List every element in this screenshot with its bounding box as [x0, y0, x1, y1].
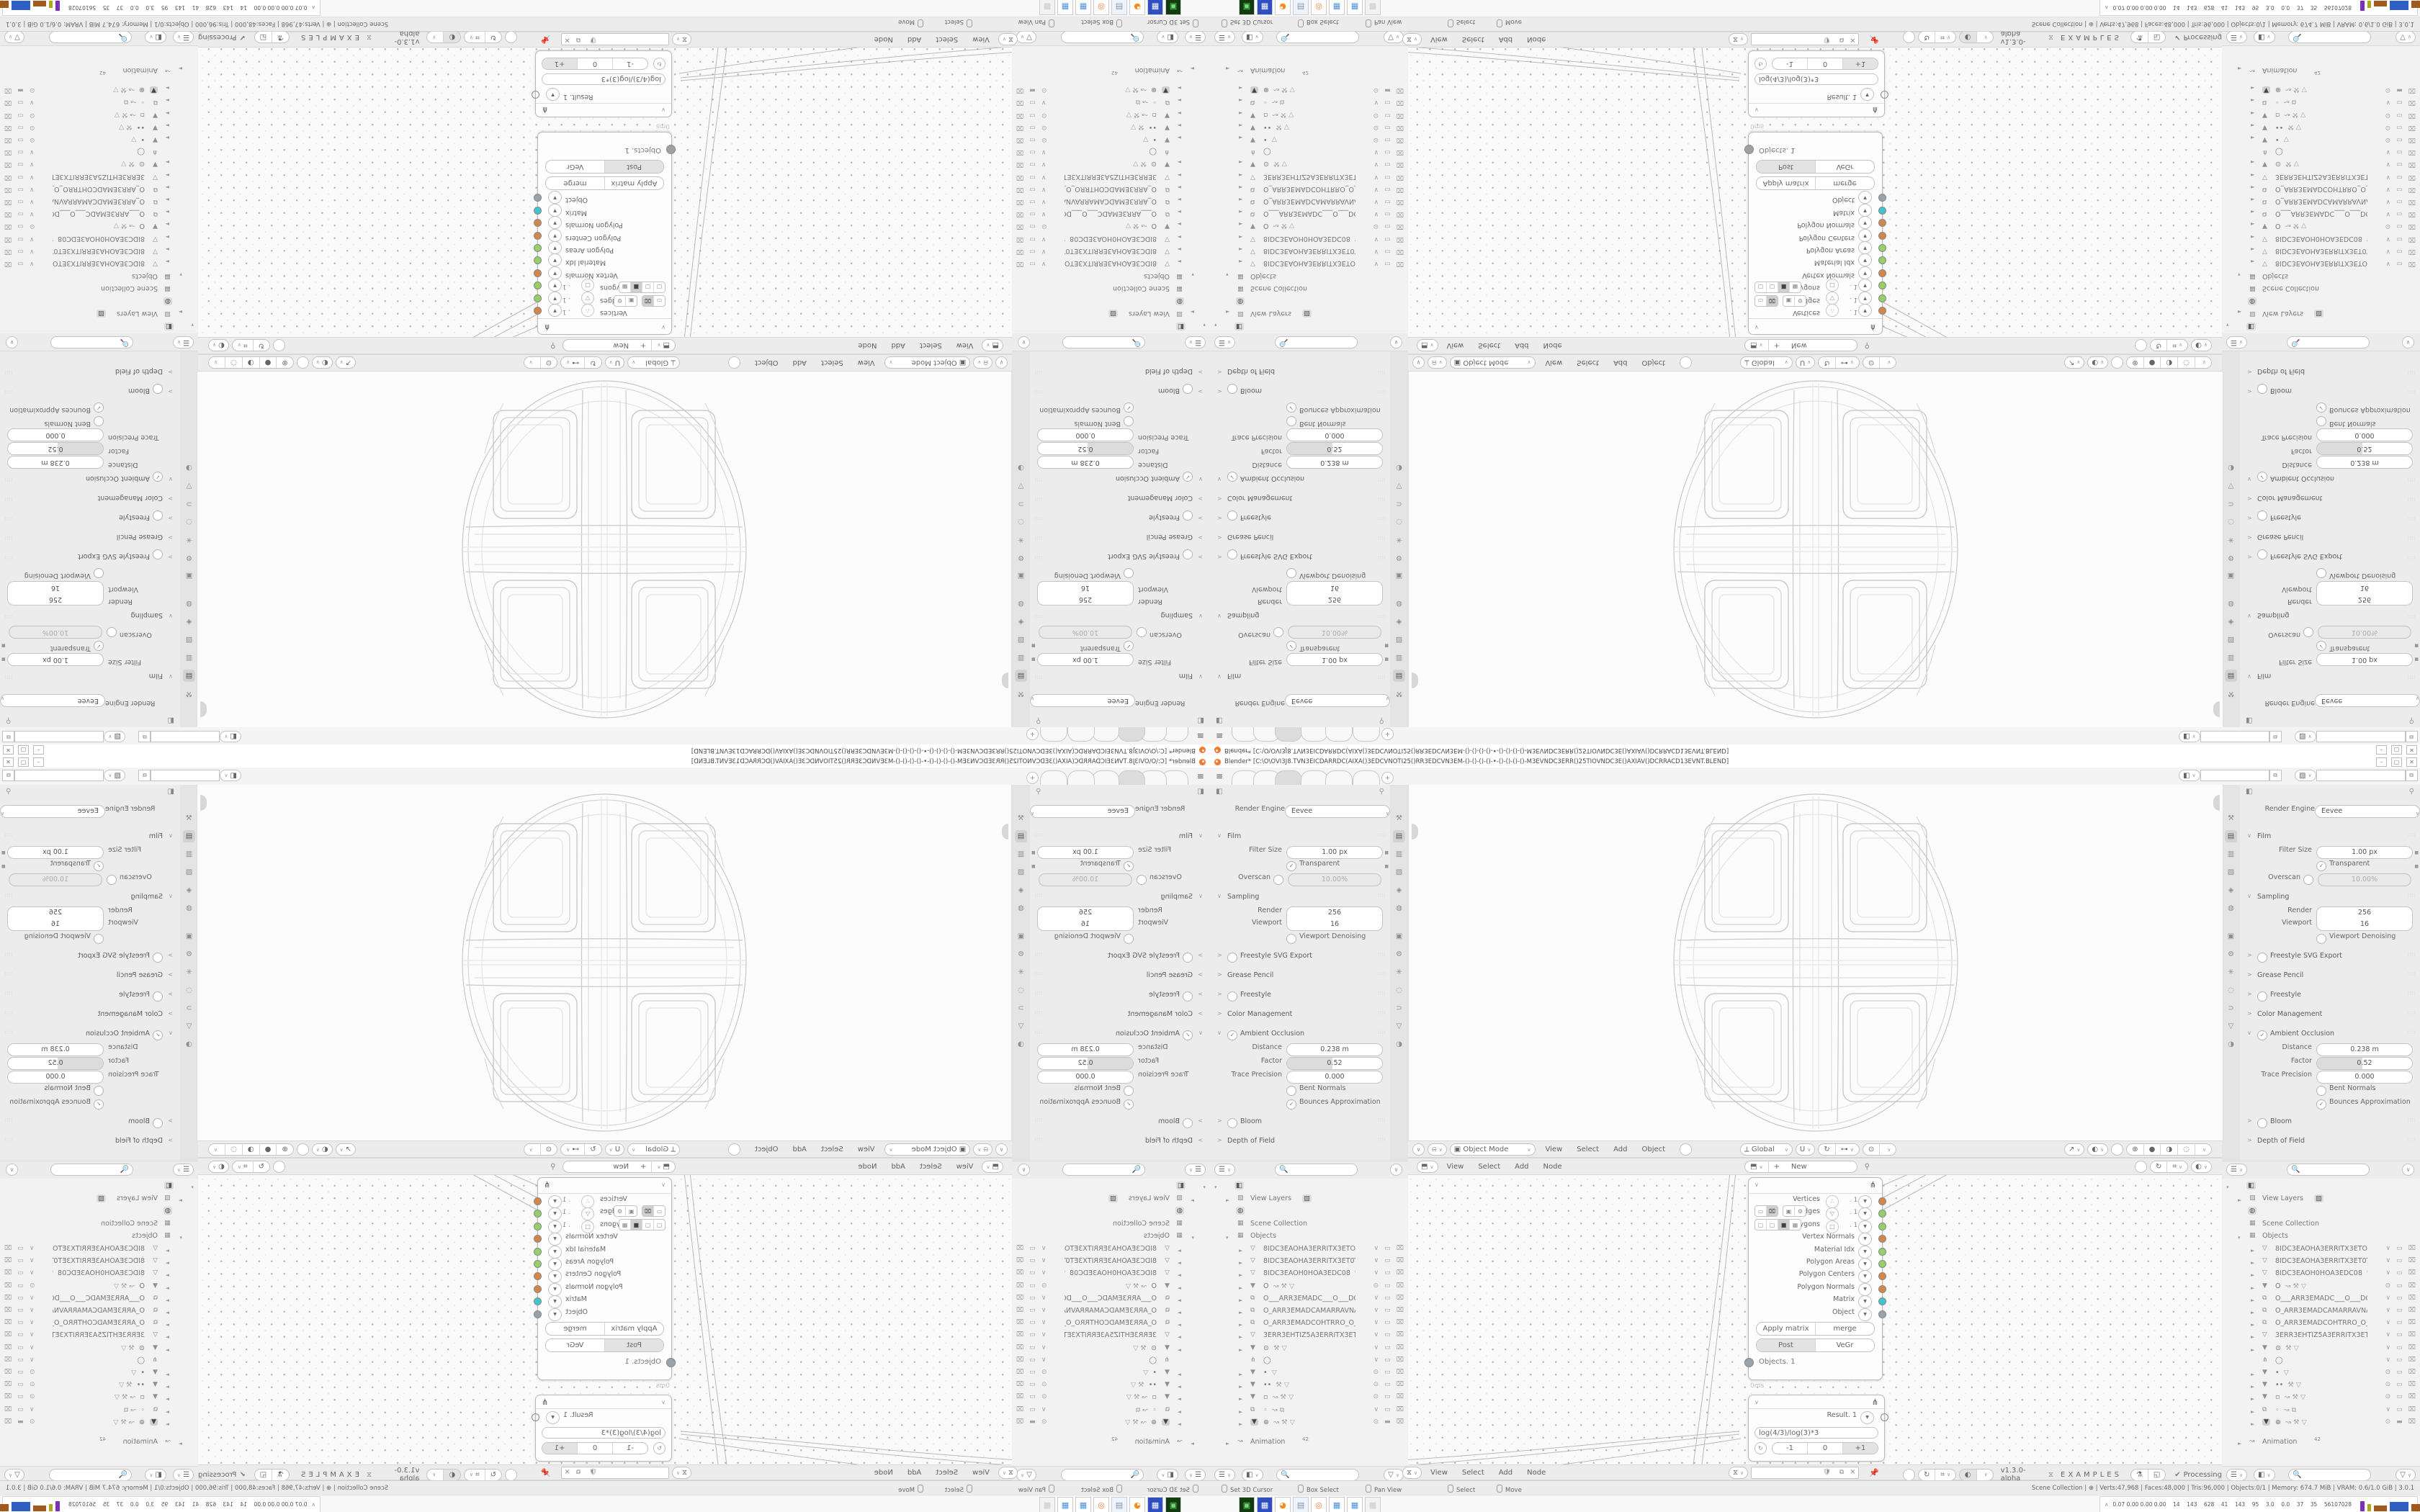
node-canvas[interactable]: ∨⋔ Vertices∴. 1▼Edges▽. 1▼Polygons□. 1▼V…	[198, 1175, 1012, 1464]
pin-icon[interactable]: 📌	[1869, 35, 1879, 44]
objects-collection-item[interactable]: Objects	[2262, 1232, 2288, 1240]
object-name[interactable]: ◦↝ ⧉	[1263, 98, 1284, 106]
object-name[interactable]: ◦↝ ⧉	[124, 98, 145, 106]
taskbar-app-icon-1[interactable]: ▦	[1257, 1497, 1273, 1512]
menu-add[interactable]: Add	[1515, 341, 1528, 349]
object-type-icon[interactable]: ▽	[2262, 260, 2267, 267]
outliner-row[interactable]: ►⧉O_ARR3EMADCAMARRAVNATI_O∨▭⌧	[1012, 194, 1210, 205]
properties-tab-icon-6[interactable]: ▣	[1393, 930, 1405, 942]
render-restrict-icon[interactable]: ⌧	[2408, 1331, 2416, 1338]
clear-icon[interactable]: ✕	[565, 36, 570, 43]
outliner-row[interactable]: ►▼▫↝ ⚒ ▽⊙▭⌧	[1012, 1393, 1210, 1405]
socket-menu-button[interactable]: ▼	[548, 1207, 562, 1220]
outliner-row[interactable]: ►▼⊙⚒ ▽∨▭⌧	[0, 1344, 198, 1356]
value-field[interactable]: 1.00 px	[1037, 846, 1134, 859]
outliner-row[interactable]: ►⧉O_ARR3EMADCAMARRAVNATI_O∨▭⌧	[0, 1307, 198, 1318]
object-type-icon[interactable]: ▽	[2262, 1245, 2267, 1252]
render-restrict-icon[interactable]: ⌧	[1016, 210, 1023, 217]
properties-tab-icon-6[interactable]: ▣	[2225, 570, 2237, 582]
object-type-icon[interactable]: ⧉	[1250, 99, 1255, 106]
render-restrict-icon[interactable]: ⌧	[1016, 198, 1023, 205]
scene-collection-item[interactable]: Scene Collection	[1250, 1220, 1307, 1228]
properties-tab-icon-9[interactable]: ◌	[1393, 516, 1405, 528]
value-field[interactable]: 256	[1286, 906, 1383, 919]
options-chevron-icon[interactable]: ∨	[2402, 1164, 2414, 1176]
tree-icon[interactable]: ⬒∨	[652, 1161, 675, 1172]
section-checkbox[interactable]: ✓	[1183, 472, 1193, 482]
viewport-3d[interactable]	[197, 372, 1012, 727]
outliner-row[interactable]: ►▧View Layers▧	[1210, 1194, 1408, 1206]
object-type-icon[interactable]: ⧉	[1250, 186, 1255, 193]
orientation-dropdown[interactable]: ⟂ Global∨	[627, 1143, 680, 1156]
outliner-row[interactable]: ►▼•▽⊙▭⌧	[1210, 1369, 1408, 1380]
value-field[interactable]: 1.00 px	[2316, 846, 2413, 859]
scene-collection-item[interactable]: Scene Collection	[2262, 284, 2319, 292]
checkbox[interactable]	[94, 568, 104, 578]
menu-view[interactable]: View	[858, 359, 875, 366]
checkbox[interactable]	[1137, 875, 1147, 885]
search-input[interactable]: 🔍	[1061, 1469, 1144, 1481]
eye-icon[interactable]: ⊙	[2385, 1381, 2391, 1388]
gizmo-icon[interactable]: ↻	[485, 1470, 501, 1480]
section-checkbox[interactable]	[2257, 549, 2267, 559]
eye-icon[interactable]: ⊙	[1041, 1282, 1047, 1290]
properties-tab-icon-10[interactable]: ⊃	[183, 498, 195, 510]
options-chevron-icon[interactable]: ∨	[1390, 336, 1402, 348]
restrict-chevron-icon[interactable]: ∨	[1041, 248, 1047, 255]
menu-object[interactable]: Object	[1641, 1146, 1665, 1153]
orientation-dropdown[interactable]: ⟂ Global∨	[1740, 1143, 1793, 1156]
eye-icon[interactable]: ⊙	[30, 1369, 35, 1376]
shading-wireframe-icon[interactable]: ⊕	[2127, 357, 2143, 368]
render-restrict-icon[interactable]: ⌧	[1016, 260, 1023, 267]
screen-icon[interactable]: ▭	[17, 1245, 24, 1252]
restrict-chevron-icon[interactable]: ∨	[2386, 1406, 2391, 1413]
outliner-row[interactable]: ⋔◯∨▭⌧	[2222, 144, 2420, 156]
eye-icon[interactable]: ⊙	[30, 1282, 35, 1290]
render-restrict-icon[interactable]: ⌧	[1397, 210, 1404, 217]
outliner-row[interactable]: ►⧉◦↝ ⧉∨▭⌧	[1210, 1406, 1408, 1418]
outliner-row[interactable]: ►⧉O_ARR3EMADCAMARRAVNATI_O∨▭⌧	[0, 194, 198, 205]
apply-matrix-button[interactable]: Apply matrix	[605, 1323, 663, 1335]
overlays-icon[interactable]	[505, 1469, 517, 1481]
screen-icon[interactable]: ▭	[1384, 1282, 1391, 1290]
screen-icon[interactable]: ▭	[1029, 235, 1036, 243]
wrap-icon[interactable]: ↻	[1754, 58, 1767, 70]
properties-tab-icon-1[interactable]: ▤	[183, 830, 195, 842]
output-socket[interactable]	[534, 269, 542, 277]
properties-tab-icon-4[interactable]: ◈	[1393, 616, 1405, 628]
properties-tab-icon-12[interactable]: ◑	[183, 1038, 195, 1050]
output-socket[interactable]	[534, 1197, 542, 1205]
object-name[interactable]: O↝ ⚒ ▽	[1126, 1282, 1157, 1290]
pin-icon[interactable]: ⚲	[1036, 716, 1041, 724]
menu-select[interactable]: Select	[920, 341, 942, 349]
socket-menu-button[interactable]: ▼	[548, 191, 562, 204]
checkbox[interactable]: ✓	[1286, 402, 1296, 413]
maximize-button[interactable]: ▢	[2391, 745, 2402, 755]
restrict-chevron-icon[interactable]: ∨	[2386, 1245, 2391, 1252]
outliner-row[interactable]: ◍	[1012, 294, 1210, 305]
pivot-icon[interactable]: ⊙	[541, 357, 557, 368]
object-name[interactable]: •▽	[131, 1369, 145, 1377]
menu-node[interactable]: Node	[858, 1163, 877, 1171]
object-type-icon[interactable]: ▽	[153, 1269, 158, 1277]
properties-tab-icon-6[interactable]: ▣	[2225, 930, 2237, 942]
object-name[interactable]: O↝ ⚒ ▽	[2275, 1282, 2306, 1290]
viewport-3d[interactable]	[1408, 372, 2223, 727]
screen-icon[interactable]: ▭	[2396, 1331, 2403, 1338]
shading-dropdown-icon[interactable]: ∨	[2195, 1144, 2211, 1155]
display-mode-dropdown[interactable]: ☰∨	[2226, 1164, 2247, 1176]
render-restrict-icon[interactable]: ⌧	[1016, 1406, 1023, 1413]
animation-item[interactable]: Animation	[123, 66, 158, 74]
restrict-chevron-icon[interactable]: ∨	[1374, 148, 1379, 156]
collapse-chevron-icon[interactable]: ∨	[1412, 356, 1425, 369]
screen-icon[interactable]: ▬	[17, 86, 24, 94]
outliner-row[interactable]: ▦Scene Collection	[1012, 1220, 1210, 1231]
object-type-icon[interactable]: ⋔	[2262, 148, 2268, 156]
outliner-row[interactable]: ►▧View Layers▧	[1012, 306, 1210, 318]
render-restrict-icon[interactable]: ⌧	[1397, 136, 1404, 143]
object-type-icon[interactable]: ▽	[1250, 174, 1255, 181]
close-button[interactable]: ✕	[3, 757, 14, 767]
value-field[interactable]: 0.000	[2316, 1071, 2413, 1084]
object-type-icon[interactable]: ▼	[2262, 222, 2267, 230]
pin-icon[interactable]: ⚲	[1865, 341, 1870, 349]
outliner-row[interactable]: ►⧉◦↝ ⧉∨▭⌧	[1012, 1406, 1210, 1418]
render-restrict-icon[interactable]: ⌧	[1397, 1319, 1404, 1326]
outliner-row[interactable]: ►▧View Layers▧	[1012, 1194, 1210, 1206]
screen-icon[interactable]: ▭	[1384, 198, 1391, 205]
filter-icon[interactable]: ◧	[164, 323, 174, 330]
menu-view[interactable]: View	[858, 1146, 875, 1153]
restrict-chevron-icon[interactable]: ∨	[30, 1406, 35, 1413]
checkbox[interactable]	[107, 875, 117, 885]
checkbox[interactable]	[1273, 875, 1283, 885]
object-type-icon[interactable]: ⧉	[153, 1295, 158, 1302]
checkbox[interactable]	[1286, 568, 1296, 578]
menu-node[interactable]: Node	[1527, 35, 1546, 43]
output-socket[interactable]	[1878, 1223, 1886, 1230]
search-input[interactable]: 🔍	[2288, 31, 2371, 43]
outliner-row[interactable]: ►▼▫↝ ⚒ ▽⊙▭⌧	[0, 107, 198, 119]
viewlayer-name-field[interactable]	[2316, 770, 2406, 781]
output-socket[interactable]	[534, 1223, 542, 1230]
render-restrict-icon[interactable]: ⌧	[1397, 1381, 1404, 1388]
search-input[interactable]: 🔍	[50, 1164, 133, 1176]
outliner-row[interactable]: ►⧉O___ARR3EMADC___O___DCAM3I∨▭⌧	[2222, 206, 2420, 217]
properties-tab-icon-2[interactable]: ▥	[183, 652, 195, 664]
object-type-icon[interactable]: ▼	[153, 1369, 158, 1376]
render-restrict-icon[interactable]: ⌧	[2408, 99, 2416, 106]
object-name[interactable]: ⊕↝ ⚒ ▽	[113, 86, 145, 94]
pivot-dropdown-icon[interactable]: ∨	[524, 1144, 541, 1155]
node-collapse-icon[interactable]: ∨	[1754, 107, 1759, 113]
viewlayer-selector-icon[interactable]: ▧∨	[2295, 770, 2316, 781]
filter-obj-dropdown[interactable]: ◧∨	[1157, 1469, 1178, 1481]
shield-icon[interactable]: 🛡	[1823, 36, 1831, 43]
search-input[interactable]: 🔍	[1062, 1164, 1145, 1176]
menu-select[interactable]: Select	[920, 1163, 942, 1171]
checkbox[interactable]	[94, 1086, 104, 1096]
viewport-3d[interactable]	[197, 785, 1012, 1140]
object-name[interactable]: ◯	[1263, 1356, 1276, 1364]
restrict-chevron-icon[interactable]: ∨	[1374, 1245, 1379, 1252]
overlays-icon[interactable]	[2135, 1161, 2147, 1173]
workspace-tab[interactable]	[1067, 770, 1095, 786]
new-tree-button[interactable]: + New	[1768, 1161, 1857, 1172]
outliner-row[interactable]: ◍	[1012, 1207, 1210, 1218]
gizmo-icon[interactable]: ↻	[2151, 1161, 2166, 1172]
section-checkbox[interactable]	[153, 510, 163, 521]
object-name[interactable]: 8IDC3EAOH0HOA3EDC08▽	[2275, 235, 2367, 243]
outliner-row[interactable]: ►▽8IDC3EAOH0HOA3EDC08▽∨▭⌧	[1012, 231, 1210, 243]
object-name[interactable]: 8IDC3EAOHA3ERRITX3ET0T3EXTIS	[53, 1257, 145, 1265]
eye-icon[interactable]: ⊙	[30, 1381, 35, 1388]
render-restrict-icon[interactable]: ⌧	[4, 86, 12, 94]
display-mode-dropdown[interactable]: ☰∨	[2226, 1469, 2247, 1481]
snap-magnet-icon[interactable]: U∨	[1796, 1143, 1815, 1156]
screen-icon[interactable]: ▬	[1029, 86, 1036, 94]
output-socket[interactable]	[534, 207, 542, 215]
filter-icon[interactable]: ◧	[164, 1182, 174, 1189]
checkbox[interactable]	[1124, 416, 1134, 426]
world-icon[interactable]: ◍	[1236, 1207, 1245, 1215]
filter-obj-dropdown[interactable]: ◧∨	[145, 1469, 166, 1481]
tray-chevron-icon[interactable]: ∧	[312, 4, 316, 11]
gizmo-icon[interactable]: ↻	[2151, 340, 2166, 351]
properties-tab-icon-5[interactable]: ◍	[2225, 902, 2237, 914]
value-field[interactable]: 0.000	[1286, 1071, 1383, 1084]
screen-icon[interactable]: ▭	[1029, 198, 1036, 205]
outliner-row[interactable]: ►▽3ERR3EHTIZ5A3ERRITX3ETOT3EXTI∨▭⌧	[1210, 169, 1408, 181]
outliner-row[interactable]: ►▼⊙⚒ ▽∨▭⌧	[2222, 1344, 2420, 1356]
menu-view[interactable]: View	[1430, 35, 1448, 43]
properties-tab-icon-2[interactable]: ▥	[1015, 652, 1027, 664]
pin-icon[interactable]: ⚲	[1379, 716, 1384, 724]
render-restrict-icon[interactable]: ⌧	[4, 174, 12, 181]
outliner-row[interactable]: ►▼••⚒ ▽⊙▭⌧	[2222, 1381, 2420, 1392]
value-field[interactable]: 1.00 px	[7, 653, 104, 666]
filter-obj-dropdown[interactable]: ◧∨	[1242, 31, 1263, 43]
objects-collection-item[interactable]: Objects	[1144, 1232, 1170, 1240]
screen-icon[interactable]: ▭	[2396, 112, 2403, 119]
object-type-icon[interactable]: ⋔	[1164, 1356, 1170, 1364]
eye-icon[interactable]: ⊙	[30, 222, 35, 230]
restrict-chevron-icon[interactable]: ∨	[2386, 1269, 2391, 1277]
properties-tab-icon-9[interactable]: ◌	[1015, 516, 1027, 528]
eye-icon[interactable]: ⊙	[2385, 222, 2391, 230]
object-type-icon[interactable]: ▽	[1165, 1245, 1170, 1252]
object-name[interactable]: O_ARR3EMADCAMARRAVNATI_O	[1065, 1307, 1157, 1315]
output-socket[interactable]	[534, 244, 542, 252]
options-chevron-icon[interactable]: ∨	[2402, 336, 2414, 348]
screen-icon[interactable]: ▭	[1384, 1331, 1391, 1338]
object-type-icon[interactable]: ⧉	[1250, 1319, 1255, 1326]
screen-icon[interactable]: ▭	[17, 1344, 24, 1351]
checkbox[interactable]: ✓	[94, 402, 104, 413]
shading-icon[interactable]: ◐	[1960, 1470, 1976, 1480]
screen-icon[interactable]: ▬	[1384, 1418, 1391, 1426]
workspace-tab[interactable]	[1092, 770, 1119, 786]
scene-collection-item[interactable]: Scene Collection	[1113, 1220, 1170, 1228]
snap-magnet-icon[interactable]: U∨	[1796, 356, 1815, 369]
object-name[interactable]: 8IDC3EAOH0HOA3EDC08▽	[1065, 1269, 1157, 1277]
outliner-row[interactable]: ►▽8IDC3EAOH0HOA3EDC08▽∨▭⌧	[1210, 231, 1408, 243]
menu-object[interactable]: Object	[1641, 359, 1665, 366]
value-field[interactable]: 1.00 px	[1286, 653, 1383, 666]
outliner-row[interactable]: ►↝Animation42	[1012, 1438, 1210, 1449]
screen-icon[interactable]: ▭	[17, 186, 24, 193]
outliner-row[interactable]: ►⧉O_ARR3EMADCAMARRAVNATI_O∨▭⌧	[1210, 194, 1408, 205]
apply-matrix-button[interactable]: Apply matrix	[605, 177, 663, 189]
properties-tab-icon-0[interactable]: ⚒	[1393, 812, 1405, 824]
object-name[interactable]: ◦↝ ⧉	[1136, 98, 1157, 106]
properties-tab-icon-6[interactable]: ▣	[183, 930, 195, 942]
checkbox[interactable]: ✓	[94, 861, 104, 871]
render-engine-dropdown[interactable]: Eevee∨	[0, 694, 105, 707]
result-output-socket[interactable]	[1881, 91, 1888, 99]
screen-icon[interactable]: ▭	[1384, 1344, 1391, 1351]
scene-selector-icon[interactable]: ◧∨	[2179, 770, 2200, 781]
render-restrict-icon[interactable]: ⌧	[1016, 1344, 1023, 1351]
object-type-icon[interactable]: ⧉	[1250, 210, 1255, 217]
maximize-button[interactable]: ▢	[18, 757, 29, 767]
merge-button[interactable]: merge	[1815, 1323, 1874, 1335]
grid-icon[interactable]: ⌗∨	[1935, 32, 1955, 43]
render-restrict-icon[interactable]: ⌧	[1397, 174, 1404, 181]
output-socket[interactable]	[1878, 294, 1886, 302]
view-object-types-icon[interactable]: ↗∨	[336, 356, 357, 369]
screen-icon[interactable]: ▭	[2396, 198, 2403, 205]
scene-selector-icon[interactable]: ◧∨	[220, 731, 241, 742]
object-type-icon[interactable]: ▽	[1250, 1257, 1255, 1264]
properties-tab-icon-7[interactable]: ⚙	[1393, 552, 1405, 564]
objects-input-socket[interactable]	[1744, 145, 1754, 154]
tray-chevron-icon[interactable]: ∧	[2105, 4, 2109, 11]
world-icon[interactable]: ◍	[1175, 297, 1184, 305]
section-checkbox[interactable]	[2257, 1118, 2267, 1128]
object-name[interactable]: ⊕↝ ⚒ ▽	[1263, 86, 1295, 94]
object-type-icon[interactable]: ▼	[1165, 124, 1170, 131]
world-icon[interactable]: ◍	[163, 1207, 172, 1215]
screen-icon[interactable]: ▭	[2396, 1393, 2403, 1400]
outliner-row[interactable]: ►▼O↝ ⚒ ▽⊙▭⌧	[0, 1282, 198, 1294]
overlays-icon[interactable]	[505, 32, 517, 44]
restrict-chevron-icon[interactable]: ∨	[1374, 1269, 1379, 1277]
overlays-icon[interactable]	[273, 1161, 285, 1173]
object-name[interactable]: ••⚒ ▽	[2275, 1381, 2301, 1389]
outliner-row[interactable]: ►▽8IDC3EAOH0HOA3EDC08▽∨▭⌧	[0, 231, 198, 243]
value-field[interactable]: 0.52	[2316, 442, 2413, 455]
render-restrict-icon[interactable]: ⌧	[2408, 1257, 2416, 1264]
maximize-button[interactable]: ▢	[18, 745, 29, 755]
socket-menu-button[interactable]: ▼	[1858, 241, 1872, 254]
shading-wireframe-icon[interactable]: ⊕	[277, 357, 292, 368]
restrict-chevron-icon[interactable]: ∨	[1041, 161, 1047, 168]
animation-item[interactable]: Animation	[2262, 1438, 2297, 1446]
restrict-chevron-icon[interactable]: ∨	[1041, 1356, 1047, 1364]
node-collapse-icon[interactable]: ∨	[661, 1399, 665, 1405]
taskbar-app-icon-2[interactable]: ◕	[1129, 1497, 1145, 1512]
outliner-row[interactable]: ►⧉O_ARR3EMADCOHTRRO_O_ORRTH∨▭⌧	[1210, 1319, 1408, 1331]
object-type-icon[interactable]: ▼	[1250, 1393, 1255, 1400]
shading-icon[interactable]: ◐∨	[208, 339, 229, 351]
properties-tab-strip[interactable]: ⚒▤▥▧◈◍▣⚙✳◌⊃▽◑	[1012, 351, 1031, 727]
outliner-row[interactable]: ⋔◯∨▭⌧	[0, 144, 198, 156]
restrict-chevron-icon[interactable]: ∨	[2386, 1331, 2391, 1338]
properties-tab-icon-12[interactable]: ◑	[1393, 1038, 1405, 1050]
render-restrict-icon[interactable]: ⌧	[4, 99, 12, 106]
value-field[interactable]: 0.52	[1286, 442, 1383, 455]
properties-tab-icon-9[interactable]: ◌	[1393, 984, 1405, 996]
object-type-icon[interactable]: ⧉	[1165, 210, 1170, 217]
outliner-row[interactable]: ►▽8IDC3EAOHA3ERRITX3ETOT3EXTIS∨▭⌧	[1012, 256, 1210, 267]
restrict-chevron-icon[interactable]: ∨	[1374, 260, 1379, 267]
menu-add[interactable]: Add	[1499, 35, 1512, 43]
outliner-row[interactable]: ►▼•▽⊙▭⌧	[2222, 1369, 2420, 1380]
object-name[interactable]: 8IDC3EAOHA3ERRITX3ETOT3EXTIS	[53, 1245, 145, 1253]
node-get-objects-data[interactable]: ∨⋔ Vertices∴. 1▼Edges▽. 1▼Polygons□. 1▼V…	[1748, 1177, 1883, 1380]
filter-obj-dropdown[interactable]: ◧∨	[1242, 1469, 1263, 1481]
properties-tab-icon-1[interactable]: ▤	[2225, 830, 2237, 842]
tree-search-field[interactable]: 🛡 ⧉ ✕	[561, 1467, 669, 1479]
render-restrict-icon[interactable]: ⌧	[4, 1319, 12, 1326]
view-object-types-icon[interactable]: ↗∨	[2064, 1143, 2085, 1156]
output-socket[interactable]	[534, 1272, 542, 1280]
shading-dropdown-icon[interactable]: ∨	[209, 1144, 225, 1155]
eye-icon[interactable]: ⊙	[30, 1393, 35, 1400]
object-type-icon[interactable]: ⧉	[153, 1406, 158, 1413]
object-name[interactable]: •▽	[1143, 1369, 1157, 1377]
render-restrict-icon[interactable]: ⌧	[1016, 1295, 1023, 1302]
restrict-chevron-icon[interactable]: ∨	[1374, 1331, 1379, 1338]
socket-menu-button[interactable]: ▼	[1858, 1207, 1872, 1220]
outliner-row[interactable]: ►▼•▽⊙▭⌧	[0, 1369, 198, 1380]
render-restrict-icon[interactable]: ⌧	[1397, 1295, 1404, 1302]
value-field[interactable]: 0.000	[1286, 428, 1383, 441]
screen-icon[interactable]: ▭	[1029, 1344, 1036, 1351]
properties-tab-icon-8[interactable]: ✳	[1015, 966, 1027, 978]
object-type-icon[interactable]: ▼	[1250, 1282, 1255, 1290]
object-type-icon[interactable]: ▼	[1250, 1381, 1255, 1388]
properties-tab-icon-8[interactable]: ✳	[1015, 534, 1027, 546]
outliner-row[interactable]: ▾▦Objects	[2222, 1232, 2420, 1243]
outliner-row[interactable]: ►⧉O_ARR3EMADCOHTRRO_O_ORRTH∨▭⌧	[0, 1319, 198, 1331]
screen-icon[interactable]: ▬	[17, 1418, 24, 1426]
screen-icon[interactable]: ▭	[2396, 210, 2403, 217]
output-socket[interactable]	[1878, 1248, 1886, 1256]
node-formula-result[interactable]: ∨⋔ Result. 1 ▼ log(4/3)/log(3)*3 ↻ -1 0 …	[535, 50, 672, 117]
object-type-icon[interactable]: ▽	[153, 235, 158, 243]
restrict-chevron-icon[interactable]: ∨	[2386, 99, 2391, 106]
object-name[interactable]: •▽	[131, 135, 145, 143]
object-name[interactable]: ◯	[1144, 1356, 1157, 1364]
outliner-row[interactable]: ►▼O↝ ⚒ ▽⊙▭⌧	[1210, 218, 1408, 230]
properties-tab-icon-0[interactable]: ⚒	[183, 812, 195, 824]
new-tree-button[interactable]: + New	[1768, 340, 1857, 351]
render-restrict-icon[interactable]: ⌧	[1016, 1369, 1023, 1376]
render-restrict-icon[interactable]: ⌧	[1397, 1331, 1404, 1338]
eye-icon[interactable]: ⊙	[1373, 222, 1379, 230]
object-type-icon[interactable]: ⧉	[1250, 1295, 1255, 1302]
shading-material-icon[interactable]: ◑	[243, 357, 260, 368]
shading-wireframe-icon[interactable]: ⊕	[2127, 1144, 2143, 1155]
output-socket[interactable]	[534, 1310, 542, 1318]
restrict-chevron-icon[interactable]: ∨	[1041, 1245, 1047, 1252]
output-socket[interactable]	[534, 294, 542, 302]
